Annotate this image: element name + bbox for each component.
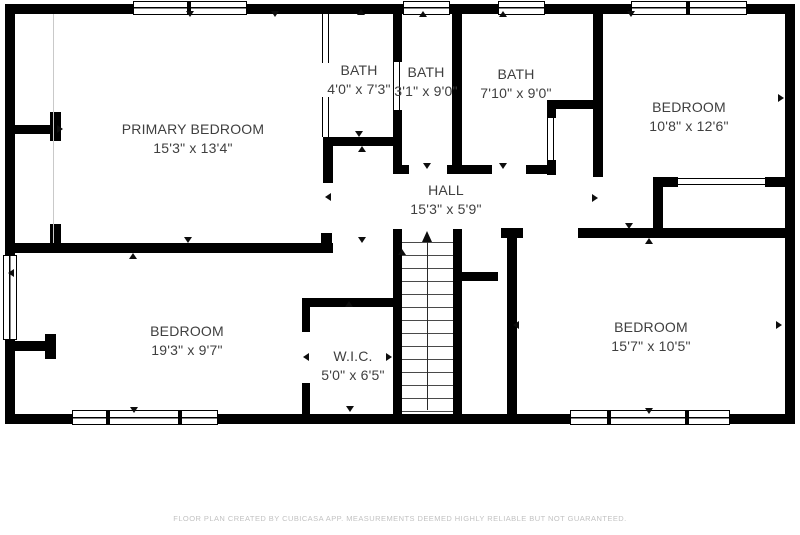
room-label-bath-1: BATH 4'0" x 7'3" <box>327 61 390 99</box>
wall-br-bedroom-cap <box>501 228 523 238</box>
marker-icon <box>778 94 784 102</box>
marker-icon <box>130 407 138 413</box>
marker-icon <box>627 11 635 17</box>
marker-icon <box>358 237 366 243</box>
stairs-up-arrow-icon <box>422 231 432 242</box>
wall-divider-cap <box>321 233 332 243</box>
sliding-door-tr-closet <box>678 178 765 185</box>
marker-icon <box>57 125 63 133</box>
window-mullion <box>178 410 182 425</box>
marker-icon <box>386 353 392 361</box>
room-label-bedroom-top-right: BEDROOM 10'8" x 12'6" <box>649 98 728 136</box>
marker-icon <box>776 321 782 329</box>
room-name: BATH <box>480 65 551 84</box>
room-name: PRIMARY BEDROOM <box>122 120 265 139</box>
marker-icon <box>419 11 427 17</box>
marker-icon <box>129 253 137 259</box>
wall-bedroom-left-pier-cap <box>45 334 56 359</box>
marker-icon <box>645 238 653 244</box>
wall-primary-right <box>323 137 333 183</box>
window-mullion <box>106 410 110 425</box>
marker-icon <box>345 301 353 307</box>
room-label-bath-2: BATH 3'1" x 9'0" <box>394 63 457 101</box>
footer-disclaimer: FLOOR PLAN CREATED BY CUBICASA APP. MEAS… <box>0 514 800 523</box>
marker-icon <box>423 163 431 169</box>
marker-icon <box>592 194 598 202</box>
marker-icon <box>357 9 365 15</box>
room-dimensions: 15'3" x 5'9" <box>410 200 481 219</box>
marker-icon <box>625 223 633 229</box>
marker-icon <box>499 163 507 169</box>
room-name: W.I.C. <box>321 347 384 366</box>
window-mullion <box>685 410 689 425</box>
room-label-bedroom-bottom-right: BEDROOM 15'7" x 10'5" <box>611 318 690 356</box>
partition-closet3-door <box>547 118 554 160</box>
marker-icon <box>513 321 519 329</box>
marker-icon <box>8 269 14 277</box>
wall-primary-closet <box>13 125 51 134</box>
room-name: HALL <box>410 181 481 200</box>
wall-right-horizontal <box>578 228 785 238</box>
marker-icon <box>184 237 192 243</box>
room-name: BEDROOM <box>649 98 728 117</box>
room-dimensions: 15'3" x 13'4" <box>122 139 265 158</box>
wall-mid-divider <box>5 243 333 253</box>
staircase <box>402 230 453 414</box>
marker-icon <box>303 353 309 361</box>
room-dimensions: 3'1" x 9'0" <box>394 82 457 101</box>
window <box>3 255 17 340</box>
room-label-hall: HALL 15'3" x 5'9" <box>410 181 481 219</box>
window <box>631 1 747 15</box>
partition-bath1-lower <box>322 97 329 137</box>
wall-wic-left-upper <box>302 298 310 332</box>
room-label-bedroom-left: BEDROOM 19'3" x 9'7" <box>150 322 224 360</box>
wall-hall-top-a <box>393 165 409 174</box>
room-name: BEDROOM <box>150 322 224 341</box>
outer-wall-right <box>785 4 795 424</box>
marker-icon <box>645 408 653 414</box>
room-dimensions: 5'0" x 6'5" <box>321 366 384 385</box>
window-mullion <box>607 410 611 425</box>
wall-bath1-bottom <box>323 137 402 146</box>
wall-cubby-bottom <box>457 272 498 281</box>
room-name: BATH <box>327 61 390 80</box>
marker-icon <box>398 249 406 255</box>
wall-stairs-right <box>453 229 462 419</box>
wall-bath2-left-top <box>393 12 402 62</box>
marker-icon <box>346 406 354 412</box>
window-mullion <box>686 1 690 15</box>
wall-closet3-stub-lower <box>547 160 556 175</box>
room-dimensions: 4'0" x 7'3" <box>327 80 390 99</box>
marker-icon <box>186 11 194 17</box>
stairs-direction-line <box>427 242 428 410</box>
window <box>72 410 218 425</box>
wall-hall-top-b <box>447 165 492 174</box>
room-dimensions: 15'7" x 10'5" <box>611 337 690 356</box>
marker-icon <box>358 146 366 152</box>
room-dimensions: 19'3" x 9'7" <box>150 341 224 360</box>
wall-primary-closet-stub <box>50 224 61 243</box>
wall-tr-closet-top-b <box>765 177 788 187</box>
room-name: BEDROOM <box>611 318 690 337</box>
room-label-primary-bedroom: PRIMARY BEDROOM 15'3" x 13'4" <box>122 120 265 158</box>
marker-icon <box>271 11 279 17</box>
room-dimensions: 10'8" x 12'6" <box>649 117 728 136</box>
room-dimensions: 7'10" x 9'0" <box>480 84 551 103</box>
wall-hall-top-c <box>526 165 547 174</box>
partition-bath1-upper <box>322 14 329 63</box>
outer-wall-left <box>5 4 15 424</box>
closet-door-line <box>53 14 54 243</box>
wall-bath3-right <box>593 12 603 177</box>
floor-plan: PRIMARY BEDROOM 15'3" x 13'4" BATH 4'0" … <box>0 0 800 535</box>
wall-wic-left-lower <box>302 383 310 416</box>
wall-stairs-left <box>393 229 402 419</box>
marker-icon <box>355 131 363 137</box>
room-label-wic: W.I.C. 5'0" x 6'5" <box>321 347 384 385</box>
marker-icon <box>325 193 331 201</box>
room-name: BATH <box>394 63 457 82</box>
room-label-bath-3: BATH 7'10" x 9'0" <box>480 65 551 103</box>
wall-bedroom-left-pier <box>13 341 47 351</box>
marker-icon <box>499 11 507 17</box>
